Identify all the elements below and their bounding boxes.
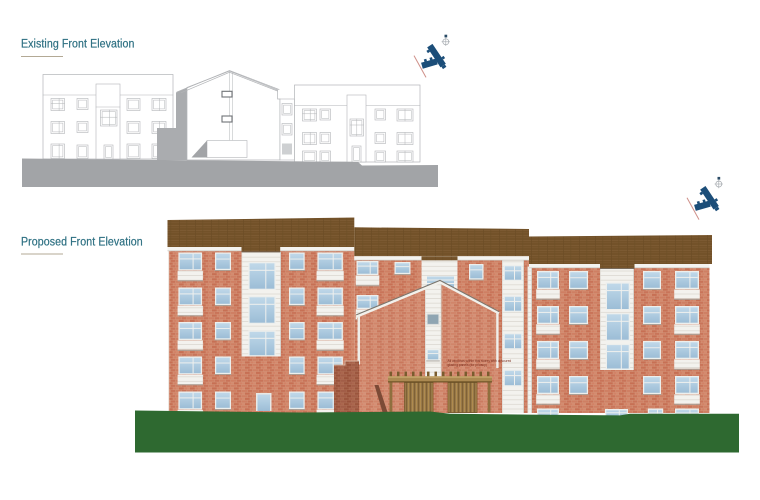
svg-text:glazing panels (for privacy): glazing panels (for privacy) (448, 363, 487, 367)
svg-text:Existing Front Elevation: Existing Front Elevation (21, 38, 134, 51)
svg-text:Proposed Front Elevation: Proposed Front Elevation (21, 236, 143, 249)
